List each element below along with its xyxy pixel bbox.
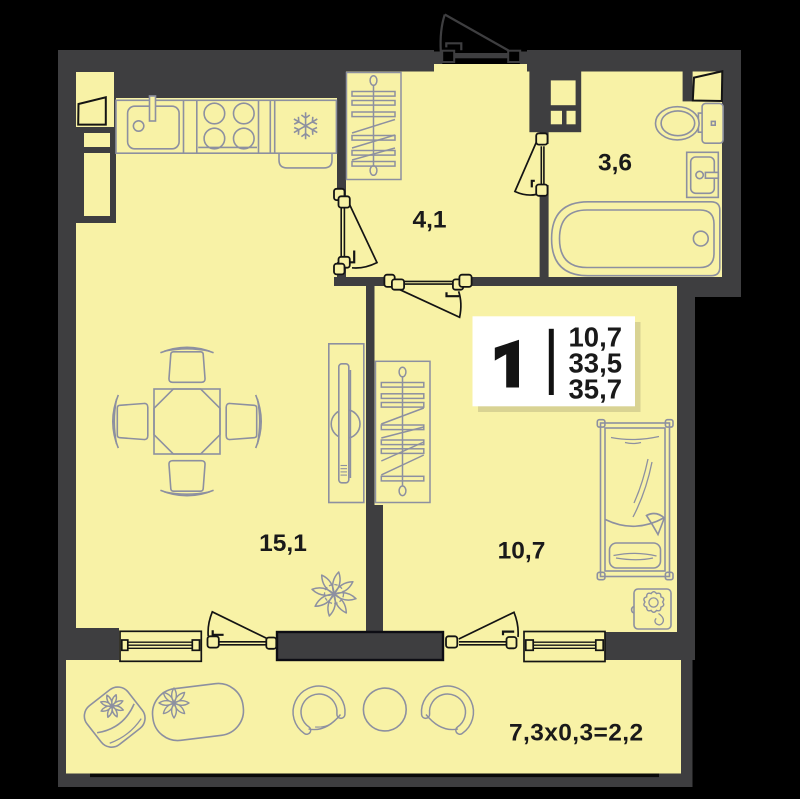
svg-text:3,6: 3,6 bbox=[598, 150, 632, 177]
svg-text:4,1: 4,1 bbox=[412, 207, 446, 234]
svg-text:10,7: 10,7 bbox=[498, 538, 546, 565]
svg-text:7,3x0,3=2,2: 7,3x0,3=2,2 bbox=[509, 720, 644, 747]
svg-text:15,1: 15,1 bbox=[259, 530, 307, 557]
svg-text:35,7: 35,7 bbox=[569, 374, 623, 405]
